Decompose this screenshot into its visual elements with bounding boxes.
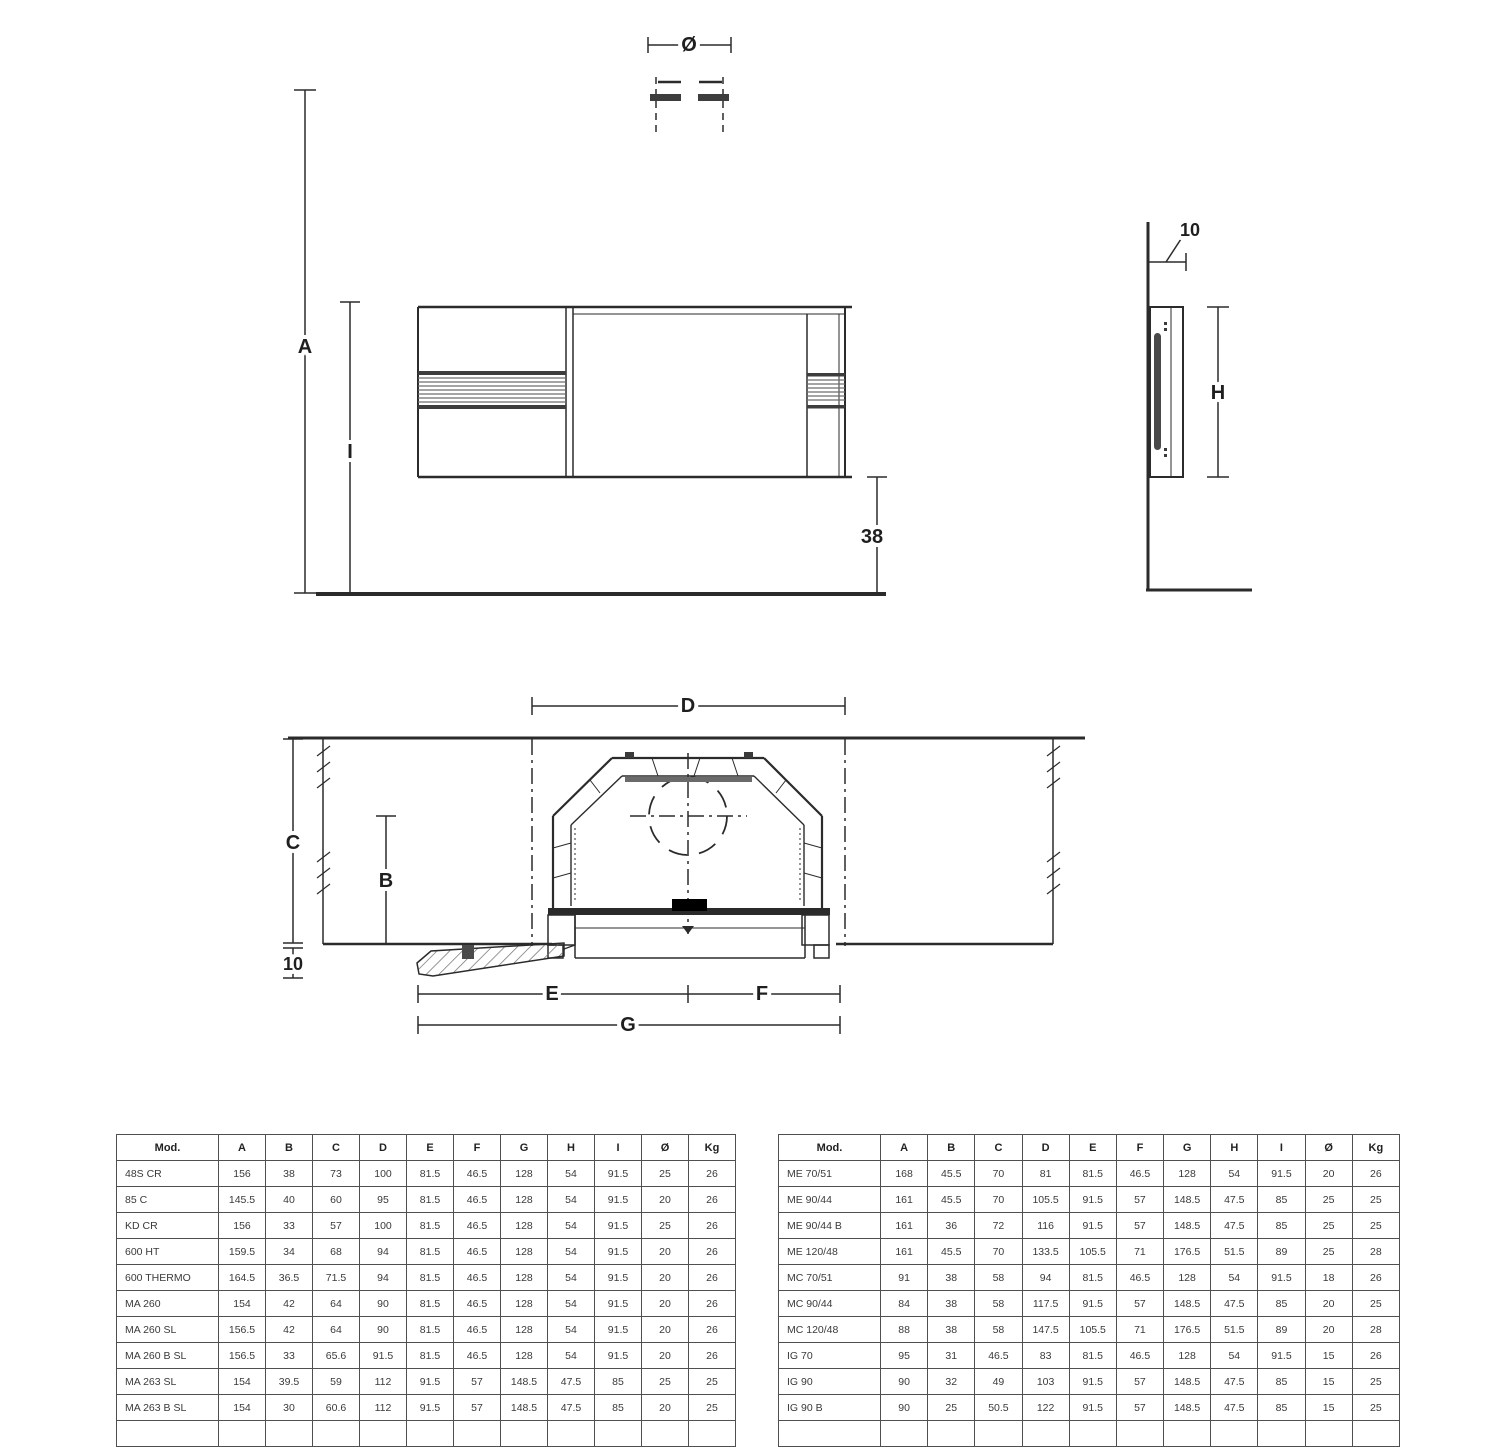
value-cell: 147.5 xyxy=(1022,1317,1069,1343)
value-cell: 148.5 xyxy=(1164,1369,1211,1395)
value-cell: 47.5 xyxy=(1211,1395,1258,1421)
value-cell: 38 xyxy=(928,1317,975,1343)
label-i: I xyxy=(347,441,353,463)
side-wall xyxy=(1146,222,1252,590)
hood-front-outline xyxy=(418,307,852,477)
header-row: Mod.ABCDEFGHIØKg xyxy=(117,1135,736,1161)
label-10-plan: 10 xyxy=(283,954,303,974)
value-cell: 91.5 xyxy=(1069,1187,1116,1213)
value-cell xyxy=(881,1421,928,1447)
value-cell: 81.5 xyxy=(407,1239,454,1265)
value-cell: 25 xyxy=(642,1161,689,1187)
value-cell: 81.5 xyxy=(407,1265,454,1291)
model-cell: MA 260 B SL xyxy=(117,1343,219,1369)
value-cell: 36.5 xyxy=(266,1265,313,1291)
value-cell: 25 xyxy=(1305,1213,1352,1239)
value-cell: 117.5 xyxy=(1022,1291,1069,1317)
value-cell xyxy=(1116,1421,1163,1447)
value-cell: 122 xyxy=(1022,1395,1069,1421)
value-cell: 85 xyxy=(1258,1395,1305,1421)
value-cell: 81.5 xyxy=(407,1187,454,1213)
value-cell: 31 xyxy=(928,1343,975,1369)
model-cell: MA 263 SL xyxy=(117,1369,219,1395)
dimension-e-f xyxy=(418,985,840,1003)
value-cell: 26 xyxy=(689,1265,736,1291)
value-cell xyxy=(501,1421,548,1447)
value-cell: 161 xyxy=(881,1213,928,1239)
value-cell: 25 xyxy=(1305,1187,1352,1213)
value-cell: 161 xyxy=(881,1239,928,1265)
value-cell: 60.6 xyxy=(313,1395,360,1421)
value-cell: 70 xyxy=(975,1187,1022,1213)
value-cell: 26 xyxy=(1352,1265,1399,1291)
value-cell: 148.5 xyxy=(1164,1213,1211,1239)
value-cell: 46.5 xyxy=(454,1213,501,1239)
value-cell: 64 xyxy=(313,1317,360,1343)
column-header: B xyxy=(266,1135,313,1161)
value-cell: 91.5 xyxy=(360,1343,407,1369)
value-cell: 90 xyxy=(881,1369,928,1395)
value-cell: 46.5 xyxy=(975,1343,1022,1369)
hood-side-profile xyxy=(1150,307,1183,477)
table-row: MC 70/519138589481.546.51285491.51826 xyxy=(779,1265,1400,1291)
value-cell: 46.5 xyxy=(454,1161,501,1187)
value-cell: 34 xyxy=(266,1239,313,1265)
value-cell xyxy=(117,1421,219,1447)
column-header: F xyxy=(1116,1135,1163,1161)
value-cell: 25 xyxy=(1305,1239,1352,1265)
value-cell xyxy=(1069,1421,1116,1447)
model-cell: IG 90 xyxy=(779,1369,881,1395)
value-cell: 116 xyxy=(1022,1213,1069,1239)
value-cell xyxy=(548,1421,595,1447)
value-cell: 33 xyxy=(266,1213,313,1239)
model-cell: KD CR xyxy=(117,1213,219,1239)
column-header: Ø xyxy=(642,1135,689,1161)
value-cell: 91.5 xyxy=(1258,1161,1305,1187)
value-cell: 168 xyxy=(881,1161,928,1187)
value-cell: 91.5 xyxy=(595,1265,642,1291)
value-cell xyxy=(1022,1421,1069,1447)
value-cell: 91 xyxy=(881,1265,928,1291)
value-cell: 30 xyxy=(266,1395,313,1421)
value-cell: 46.5 xyxy=(454,1317,501,1343)
value-cell: 36 xyxy=(928,1213,975,1239)
value-cell: 51.5 xyxy=(1211,1239,1258,1265)
value-cell: 91.5 xyxy=(595,1343,642,1369)
label-d: D xyxy=(681,695,695,717)
value-cell: 70 xyxy=(975,1161,1022,1187)
model-cell: MA 260 xyxy=(117,1291,219,1317)
value-cell xyxy=(689,1421,736,1447)
table-row: 600 HT159.534689481.546.51285491.52026 xyxy=(117,1239,736,1265)
value-cell: 105.5 xyxy=(1022,1187,1069,1213)
table-row: 48S CR156387310081.546.51285491.52526 xyxy=(117,1161,736,1187)
value-cell: 161 xyxy=(881,1187,928,1213)
value-cell: 81.5 xyxy=(407,1317,454,1343)
model-cell: MC 120/48 xyxy=(779,1317,881,1343)
value-cell: 20 xyxy=(1305,1291,1352,1317)
value-cell: 105.5 xyxy=(1069,1239,1116,1265)
value-cell: 154 xyxy=(219,1291,266,1317)
value-cell: 54 xyxy=(548,1213,595,1239)
table-row: 600 THERMO164.536.571.59481.546.51285491… xyxy=(117,1265,736,1291)
value-cell: 71.5 xyxy=(313,1265,360,1291)
column-header: Ø xyxy=(1305,1135,1352,1161)
model-cell: MC 90/44 xyxy=(779,1291,881,1317)
value-cell xyxy=(454,1421,501,1447)
table-row: MA 263 B SL1543060.611291.557148.547.585… xyxy=(117,1395,736,1421)
column-header: C xyxy=(975,1135,1022,1161)
value-cell: 159.5 xyxy=(219,1239,266,1265)
label-10-side: 10 xyxy=(1180,220,1200,240)
column-header: I xyxy=(1258,1135,1305,1161)
value-cell: 81.5 xyxy=(407,1291,454,1317)
model-cell: IG 90 B xyxy=(779,1395,881,1421)
value-cell: 58 xyxy=(975,1265,1022,1291)
table-row: MA 26015442649081.546.51285491.52026 xyxy=(117,1291,736,1317)
value-cell: 128 xyxy=(501,1343,548,1369)
value-cell: 54 xyxy=(548,1265,595,1291)
value-cell: 91.5 xyxy=(595,1317,642,1343)
value-cell: 156 xyxy=(219,1161,266,1187)
value-cell: 154 xyxy=(219,1395,266,1421)
value-cell: 20 xyxy=(642,1291,689,1317)
table-row: MA 263 SL15439.55911291.557148.547.58525… xyxy=(117,1369,736,1395)
value-cell: 85 xyxy=(595,1369,642,1395)
value-cell: 45.5 xyxy=(928,1161,975,1187)
value-cell: 33 xyxy=(266,1343,313,1369)
value-cell: 94 xyxy=(360,1239,407,1265)
table-row: IG 70953146.58381.546.51285491.51526 xyxy=(779,1343,1400,1369)
value-cell: 91.5 xyxy=(595,1291,642,1317)
value-cell: 81.5 xyxy=(407,1213,454,1239)
value-cell xyxy=(642,1421,689,1447)
value-cell: 85 xyxy=(1258,1187,1305,1213)
value-cell: 32 xyxy=(928,1369,975,1395)
table-row: IG 90 B902550.512291.557148.547.5851525 xyxy=(779,1395,1400,1421)
value-cell: 26 xyxy=(689,1239,736,1265)
value-cell: 103 xyxy=(1022,1369,1069,1395)
value-cell: 28 xyxy=(1352,1239,1399,1265)
value-cell: 42 xyxy=(266,1317,313,1343)
value-cell: 81.5 xyxy=(1069,1265,1116,1291)
model-cell: MA 260 SL xyxy=(117,1317,219,1343)
value-cell: 154 xyxy=(219,1369,266,1395)
model-cell: MC 70/51 xyxy=(779,1265,881,1291)
column-header: H xyxy=(548,1135,595,1161)
plan-view xyxy=(283,697,1085,1034)
value-cell: 25 xyxy=(642,1213,689,1239)
value-cell: 54 xyxy=(1211,1265,1258,1291)
value-cell: 46.5 xyxy=(454,1265,501,1291)
open-door-flap xyxy=(417,943,575,976)
value-cell: 128 xyxy=(501,1265,548,1291)
value-cell: 128 xyxy=(1164,1161,1211,1187)
value-cell: 47.5 xyxy=(1211,1213,1258,1239)
label-e: E xyxy=(545,983,558,1005)
value-cell: 50.5 xyxy=(975,1395,1022,1421)
value-cell: 20 xyxy=(642,1395,689,1421)
value-cell: 20 xyxy=(642,1317,689,1343)
column-header: Kg xyxy=(689,1135,736,1161)
value-cell: 89 xyxy=(1258,1239,1305,1265)
dimension-table-right: Mod.ABCDEFGHIØKgME 70/5116845.5708181.54… xyxy=(778,1134,1400,1447)
value-cell: 176.5 xyxy=(1164,1317,1211,1343)
model-cell: ME 90/44 B xyxy=(779,1213,881,1239)
value-cell: 70 xyxy=(975,1239,1022,1265)
value-cell: 25 xyxy=(1352,1187,1399,1213)
model-cell: 85 C xyxy=(117,1187,219,1213)
value-cell: 54 xyxy=(548,1317,595,1343)
technical-sheet-page: { "drawing": { "front_view": { "labels":… xyxy=(0,0,1500,1427)
value-cell xyxy=(1211,1421,1258,1447)
dimension-table-left: Mod.ABCDEFGHIØKg48S CR156387310081.546.5… xyxy=(116,1134,736,1447)
value-cell: 128 xyxy=(501,1317,548,1343)
value-cell: 90 xyxy=(881,1395,928,1421)
value-cell: 81.5 xyxy=(1069,1343,1116,1369)
value-cell: 18 xyxy=(1305,1265,1352,1291)
value-cell xyxy=(975,1421,1022,1447)
value-cell: 26 xyxy=(689,1343,736,1369)
value-cell: 91.5 xyxy=(1069,1369,1116,1395)
value-cell: 59 xyxy=(313,1369,360,1395)
value-cell: 57 xyxy=(1116,1187,1163,1213)
column-header: I xyxy=(595,1135,642,1161)
value-cell: 47.5 xyxy=(548,1369,595,1395)
value-cell: 46.5 xyxy=(454,1343,501,1369)
value-cell: 15 xyxy=(1305,1395,1352,1421)
value-cell: 128 xyxy=(501,1239,548,1265)
value-cell: 156.5 xyxy=(219,1317,266,1343)
column-header: G xyxy=(501,1135,548,1161)
table-row: ME 90/44 B161367211691.557148.547.585252… xyxy=(779,1213,1400,1239)
label-a: A xyxy=(298,336,312,358)
table-row-partial xyxy=(779,1421,1400,1447)
model-cell: 600 THERMO xyxy=(117,1265,219,1291)
value-cell: 46.5 xyxy=(454,1187,501,1213)
value-cell: 100 xyxy=(360,1161,407,1187)
value-cell: 54 xyxy=(548,1291,595,1317)
table-row: IG 9090324910391.557148.547.5851525 xyxy=(779,1369,1400,1395)
value-cell: 51.5 xyxy=(1211,1317,1258,1343)
value-cell: 128 xyxy=(1164,1343,1211,1369)
table-row: MC 90/44843858117.591.557148.547.5852025 xyxy=(779,1291,1400,1317)
value-cell: 90 xyxy=(360,1291,407,1317)
value-cell: 91.5 xyxy=(1258,1343,1305,1369)
value-cell: 91.5 xyxy=(1069,1291,1116,1317)
value-cell: 25 xyxy=(1352,1395,1399,1421)
value-cell: 72 xyxy=(975,1213,1022,1239)
value-cell: 148.5 xyxy=(501,1369,548,1395)
value-cell xyxy=(928,1421,975,1447)
value-cell: 15 xyxy=(1305,1343,1352,1369)
value-cell xyxy=(1164,1421,1211,1447)
value-cell: 91.5 xyxy=(1069,1213,1116,1239)
label-38: 38 xyxy=(861,526,883,548)
column-header: G xyxy=(1164,1135,1211,1161)
value-cell: 91.5 xyxy=(595,1213,642,1239)
value-cell: 112 xyxy=(360,1369,407,1395)
value-cell: 148.5 xyxy=(1164,1291,1211,1317)
value-cell: 20 xyxy=(642,1239,689,1265)
value-cell: 145.5 xyxy=(219,1187,266,1213)
table-row: KD CR156335710081.546.51285491.52526 xyxy=(117,1213,736,1239)
value-cell: 71 xyxy=(1116,1239,1163,1265)
value-cell: 46.5 xyxy=(1116,1343,1163,1369)
value-cell: 26 xyxy=(689,1187,736,1213)
value-cell: 47.5 xyxy=(548,1395,595,1421)
value-cell: 38 xyxy=(266,1161,313,1187)
column-header: A xyxy=(881,1135,928,1161)
value-cell: 64 xyxy=(313,1291,360,1317)
value-cell: 54 xyxy=(548,1239,595,1265)
model-cell: 48S CR xyxy=(117,1161,219,1187)
table-row: MC 120/48883858147.5105.571176.551.58920… xyxy=(779,1317,1400,1343)
table-row: ME 120/4816145.570133.5105.571176.551.58… xyxy=(779,1239,1400,1265)
value-cell: 25 xyxy=(1352,1291,1399,1317)
value-cell: 40 xyxy=(266,1187,313,1213)
value-cell: 105.5 xyxy=(1069,1317,1116,1343)
label-diameter: Ø xyxy=(681,34,697,56)
value-cell: 90 xyxy=(360,1317,407,1343)
value-cell: 128 xyxy=(501,1187,548,1213)
model-cell: IG 70 xyxy=(779,1343,881,1369)
table-row: MA 260 SL156.542649081.546.51285491.5202… xyxy=(117,1317,736,1343)
value-cell: 89 xyxy=(1258,1317,1305,1343)
value-cell: 133.5 xyxy=(1022,1239,1069,1265)
column-header: E xyxy=(407,1135,454,1161)
column-header: Kg xyxy=(1352,1135,1399,1161)
value-cell: 128 xyxy=(501,1213,548,1239)
flue-pipe-stub xyxy=(650,77,729,137)
value-cell: 148.5 xyxy=(1164,1187,1211,1213)
model-cell: ME 120/48 xyxy=(779,1239,881,1265)
value-cell: 57 xyxy=(313,1213,360,1239)
value-cell: 112 xyxy=(360,1395,407,1421)
value-cell: 57 xyxy=(1116,1395,1163,1421)
value-cell: 85 xyxy=(595,1395,642,1421)
value-cell: 176.5 xyxy=(1164,1239,1211,1265)
value-cell: 60 xyxy=(313,1187,360,1213)
value-cell: 85 xyxy=(1258,1369,1305,1395)
value-cell: 81 xyxy=(1022,1161,1069,1187)
value-cell: 54 xyxy=(548,1343,595,1369)
column-header: E xyxy=(1069,1135,1116,1161)
value-cell: 57 xyxy=(1116,1369,1163,1395)
value-cell: 91.5 xyxy=(407,1395,454,1421)
value-cell: 15 xyxy=(1305,1369,1352,1395)
side-view xyxy=(1146,222,1252,590)
value-cell: 57 xyxy=(1116,1291,1163,1317)
model-cell: 600 HT xyxy=(117,1239,219,1265)
model-cell: MA 263 B SL xyxy=(117,1395,219,1421)
value-cell: 57 xyxy=(454,1395,501,1421)
value-cell: 25 xyxy=(689,1369,736,1395)
value-cell: 25 xyxy=(689,1395,736,1421)
value-cell: 148.5 xyxy=(501,1395,548,1421)
value-cell xyxy=(360,1421,407,1447)
value-cell: 156.5 xyxy=(219,1343,266,1369)
value-cell: 57 xyxy=(1116,1213,1163,1239)
value-cell: 26 xyxy=(1352,1161,1399,1187)
dimension-10-side xyxy=(1148,239,1186,271)
value-cell: 164.5 xyxy=(219,1265,266,1291)
value-cell xyxy=(1305,1421,1352,1447)
value-cell: 81.5 xyxy=(407,1161,454,1187)
value-cell: 26 xyxy=(689,1317,736,1343)
column-header: A xyxy=(219,1135,266,1161)
value-cell: 38 xyxy=(928,1265,975,1291)
value-cell: 71 xyxy=(1116,1317,1163,1343)
value-cell: 95 xyxy=(881,1343,928,1369)
value-cell: 58 xyxy=(975,1317,1022,1343)
value-cell: 47.5 xyxy=(1211,1291,1258,1317)
label-f: F xyxy=(756,983,768,1005)
value-cell xyxy=(779,1421,881,1447)
value-cell: 91.5 xyxy=(1258,1265,1305,1291)
value-cell: 45.5 xyxy=(928,1187,975,1213)
value-cell: 54 xyxy=(1211,1161,1258,1187)
column-header: C xyxy=(313,1135,360,1161)
value-cell: 26 xyxy=(689,1161,736,1187)
value-cell: 128 xyxy=(501,1161,548,1187)
value-cell: 46.5 xyxy=(454,1291,501,1317)
value-cell: 128 xyxy=(1164,1265,1211,1291)
value-cell: 57 xyxy=(454,1369,501,1395)
value-cell: 26 xyxy=(689,1291,736,1317)
value-cell: 46.5 xyxy=(454,1239,501,1265)
value-cell xyxy=(313,1421,360,1447)
header-row: Mod.ABCDEFGHIØKg xyxy=(779,1135,1400,1161)
value-cell: 20 xyxy=(642,1343,689,1369)
value-cell: 54 xyxy=(548,1187,595,1213)
value-cell: 54 xyxy=(1211,1343,1258,1369)
table-row-partial xyxy=(117,1421,736,1447)
value-cell: 42 xyxy=(266,1291,313,1317)
value-cell: 26 xyxy=(689,1213,736,1239)
label-b: B xyxy=(379,870,393,892)
value-cell: 20 xyxy=(642,1187,689,1213)
value-cell: 20 xyxy=(1305,1161,1352,1187)
value-cell: 26 xyxy=(1352,1343,1399,1369)
value-cell: 84 xyxy=(881,1291,928,1317)
column-header: Mod. xyxy=(117,1135,219,1161)
value-cell: 148.5 xyxy=(1164,1395,1211,1421)
value-cell: 88 xyxy=(881,1317,928,1343)
value-cell: 20 xyxy=(642,1265,689,1291)
value-cell xyxy=(595,1421,642,1447)
column-header: B xyxy=(928,1135,975,1161)
value-cell: 25 xyxy=(928,1395,975,1421)
column-header: H xyxy=(1211,1135,1258,1161)
value-cell: 73 xyxy=(313,1161,360,1187)
dimension-labels: Ø A I 38 10 H D C B 10 E F G xyxy=(283,34,1225,1036)
value-cell: 54 xyxy=(548,1161,595,1187)
value-cell xyxy=(266,1421,313,1447)
value-cell: 91.5 xyxy=(1069,1395,1116,1421)
value-cell: 83 xyxy=(1022,1343,1069,1369)
value-cell: 58 xyxy=(975,1291,1022,1317)
value-cell: 49 xyxy=(975,1369,1022,1395)
value-cell: 100 xyxy=(360,1213,407,1239)
label-h: H xyxy=(1211,382,1225,404)
value-cell: 25 xyxy=(1352,1369,1399,1395)
column-header: Mod. xyxy=(779,1135,881,1161)
value-cell: 47.5 xyxy=(1211,1369,1258,1395)
value-cell: 46.5 xyxy=(1116,1161,1163,1187)
value-cell: 81.5 xyxy=(1069,1161,1116,1187)
